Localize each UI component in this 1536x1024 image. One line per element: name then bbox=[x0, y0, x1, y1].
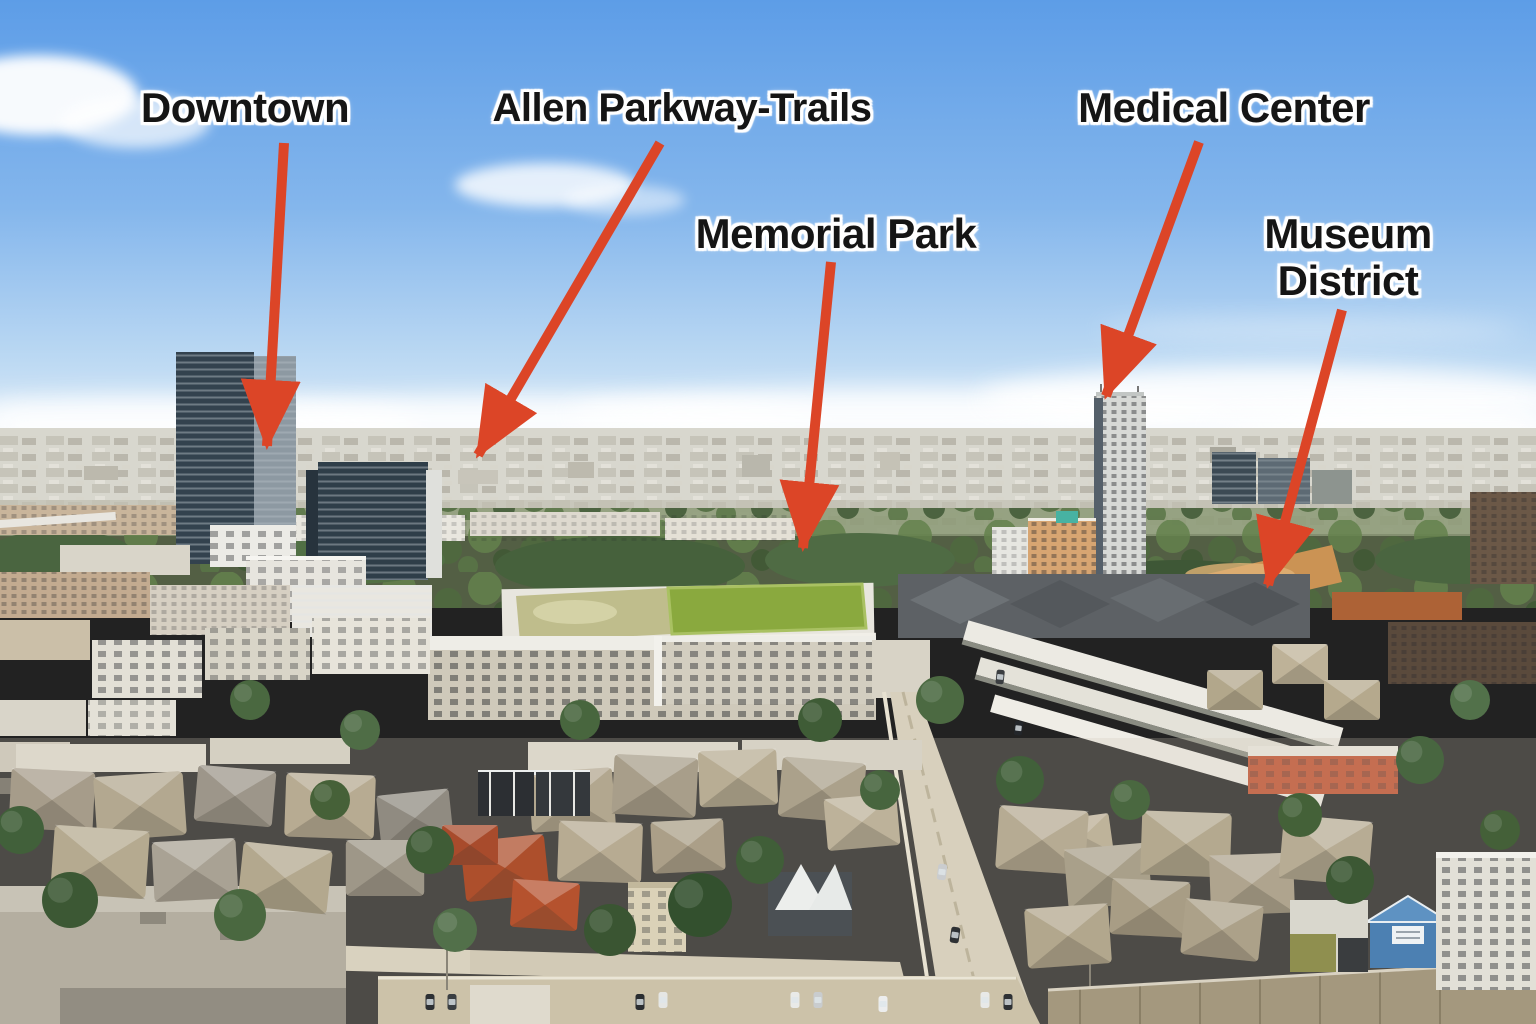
white-gable-house bbox=[768, 864, 852, 936]
annotated-aerial-photo: Downtown Allen Parkway-Trails Memorial P… bbox=[0, 0, 1536, 1024]
right-white-apartment bbox=[1436, 852, 1536, 990]
label-medical-center: Medical Center bbox=[1078, 84, 1370, 131]
label-downtown: Downtown bbox=[141, 84, 349, 131]
central-apartment-complex bbox=[428, 636, 930, 720]
aerial-scene bbox=[0, 0, 1536, 1024]
label-museum-district: Museum District bbox=[1254, 210, 1442, 304]
olive-modern-building bbox=[1290, 900, 1368, 972]
modern-duplex bbox=[478, 770, 590, 816]
label-memorial-park: Memorial Park bbox=[696, 210, 977, 257]
label-allen-parkway-trails: Allen Parkway-Trails bbox=[492, 86, 871, 131]
medical-center-tower bbox=[1094, 384, 1146, 578]
